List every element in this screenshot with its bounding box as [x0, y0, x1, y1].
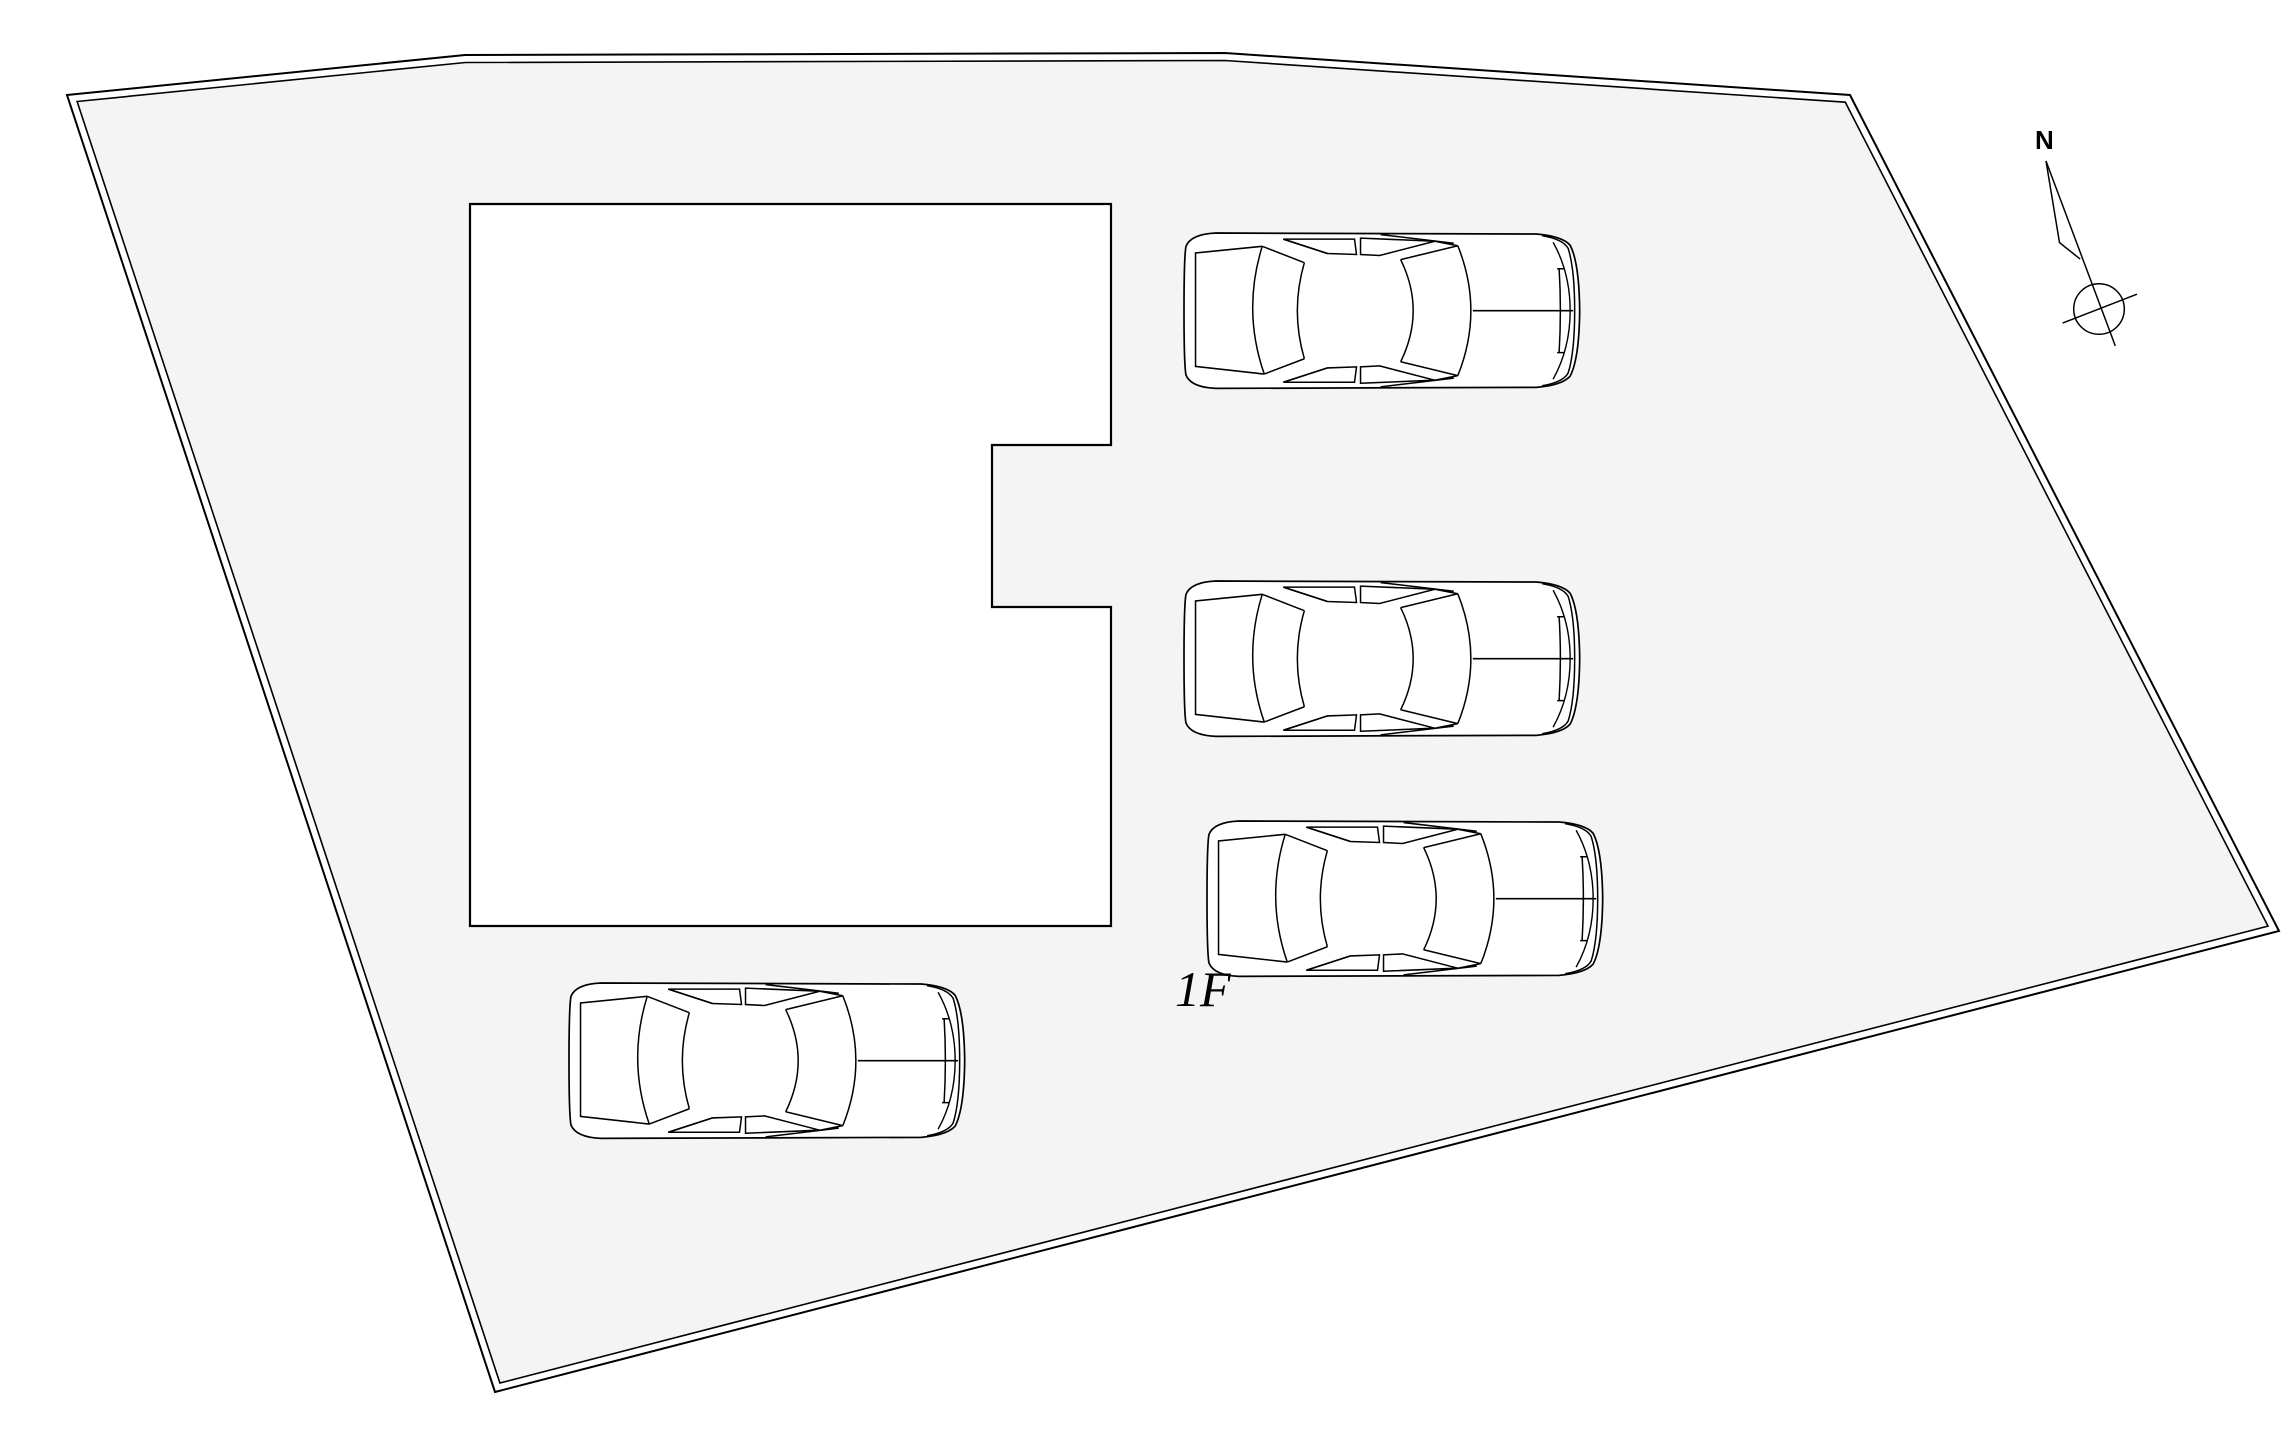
svg-text:N: N: [2035, 125, 2054, 155]
svg-text:1F: 1F: [1175, 961, 1231, 1017]
